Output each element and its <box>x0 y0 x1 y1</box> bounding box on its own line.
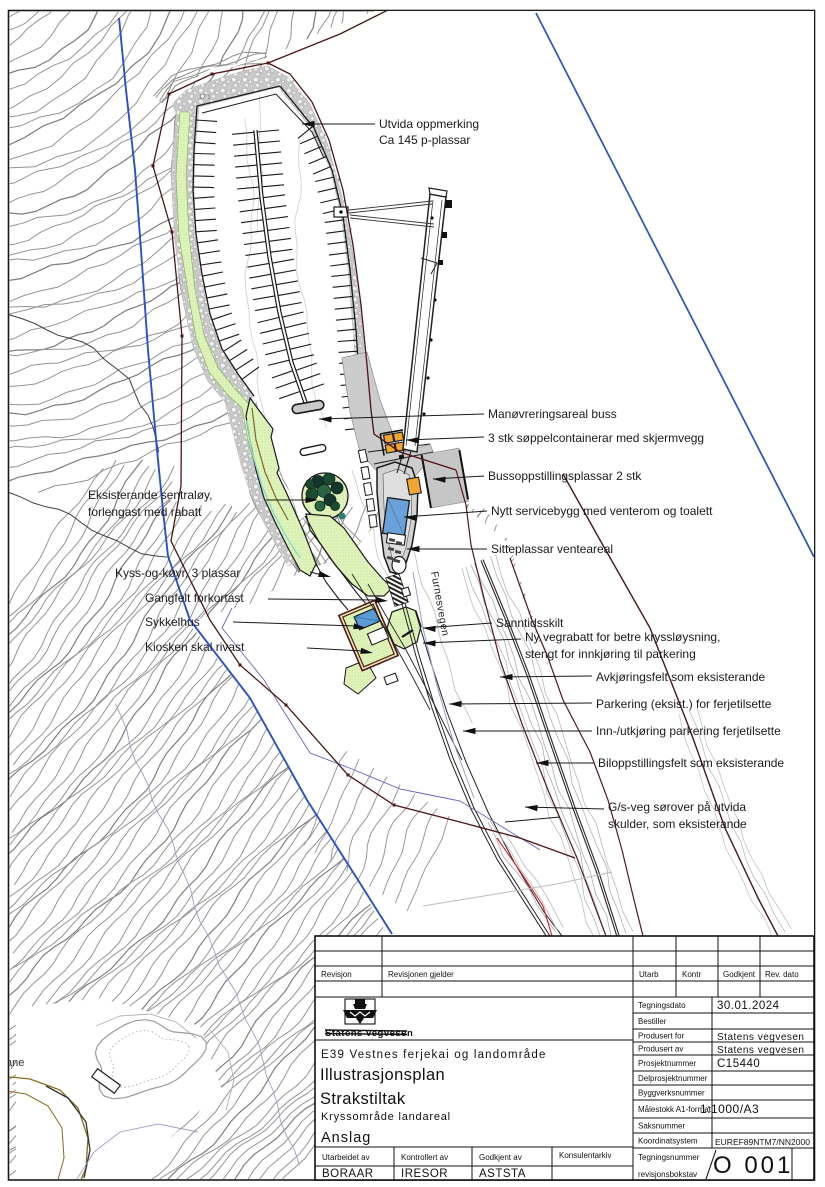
svg-text:Inn-/utkjøring parkering ferje: Inn-/utkjøring parkering ferjetilsette <box>596 724 781 738</box>
svg-text:Ca 145 p-plassar: Ca 145 p-plassar <box>379 133 470 147</box>
svg-text:Godkjent: Godkjent <box>723 970 756 979</box>
svg-text:Produsert for: Produsert for <box>638 1032 685 1041</box>
svg-text:Ny vegrabatt for betre krysslø: Ny vegrabatt for betre kryssløysning, <box>525 630 720 644</box>
svg-text:BORAAR: BORAAR <box>322 1168 374 1180</box>
svg-text:stengt for innkjøring til park: stengt for innkjøring til parkering <box>525 647 696 661</box>
svg-text:Utarbeidet av: Utarbeidet av <box>322 1153 370 1162</box>
svg-text:Gangfelt forkortast: Gangfelt forkortast <box>145 591 244 605</box>
svg-text:skulder, som eksisterande: skulder, som eksisterande <box>608 817 747 831</box>
svg-text:Sanntidsskilt: Sanntidsskilt <box>496 616 564 630</box>
svg-text:Biloppstillingsfelt som eksist: Biloppstillingsfelt som eksisterande <box>598 756 784 770</box>
svg-text:Prosjektnummer: Prosjektnummer <box>638 1059 697 1068</box>
svg-text:Eksisterande sentraløy,: Eksisterande sentraløy, <box>88 488 213 502</box>
svg-text:Bestiller: Bestiller <box>638 1017 667 1026</box>
svg-text:ASTSTA: ASTSTA <box>479 1168 526 1180</box>
svg-text:G/s-veg sørover på utvida: G/s-veg sørover på utvida <box>608 800 746 814</box>
svg-text:IRESOR: IRESOR <box>401 1168 448 1180</box>
svg-text:Konsulentarkiv: Konsulentarkiv <box>559 1151 611 1160</box>
svg-text:Statens vegvesen: Statens vegvesen <box>717 1045 805 1056</box>
svg-text:Illustrasjonsplan: Illustrasjonsplan <box>320 1066 445 1084</box>
svg-text:EUREF89NTM7/NN2000: EUREF89NTM7/NN2000 <box>715 1137 810 1147</box>
svg-text:Sitteplassar venteareal: Sitteplassar venteareal <box>491 542 613 556</box>
svg-text:Tegningsdato: Tegningsdato <box>638 1001 686 1010</box>
svg-text:30.01.2024: 30.01.2024 <box>717 1000 780 1012</box>
svg-text:Saksnummer: Saksnummer <box>638 1122 685 1131</box>
svg-text:forlengast med rabatt: forlengast med rabatt <box>88 505 202 519</box>
svg-text:Strakstiltak: Strakstiltak <box>320 1090 406 1108</box>
svg-text:Utvida oppmerking: Utvida oppmerking <box>379 117 479 131</box>
svg-text:Kiosken skal rivast: Kiosken skal rivast <box>145 640 245 654</box>
svg-text:E39 Vestnes ferjekai og la: E39 Vestnes ferjekai og landområde <box>321 1049 547 1061</box>
svg-text:Manøvreringsareal buss: Manøvreringsareal buss <box>488 407 617 421</box>
svg-text:Revisjon: Revisjon <box>321 970 352 979</box>
svg-text:Revisjonen gjelder: Revisjonen gjelder <box>388 970 454 979</box>
svg-text:Anslag: Anslag <box>321 1130 371 1146</box>
svg-text:Tegningsnummer: Tegningsnummer <box>638 1153 700 1162</box>
svg-text:Utarb: Utarb <box>639 970 659 979</box>
svg-text:Byggverksnummer: Byggverksnummer <box>638 1089 705 1098</box>
svg-text:Kryssområde landareal: Kryssområde landareal <box>321 1111 451 1123</box>
svg-text:Nytt servicebygg med venterom: Nytt servicebygg med venterom og toalett <box>491 504 713 518</box>
svg-text:C15440: C15440 <box>717 1058 760 1070</box>
svg-text:3 stk søppelcontainerar med sk: 3 stk søppelcontainerar med skjermvegg <box>488 431 704 445</box>
svg-text:Statens vegvesen: Statens vegvesen <box>717 1032 805 1043</box>
svg-text:revisjonsbokstav: revisjonsbokstav <box>638 1170 697 1179</box>
svg-text:Delprosjektnummer: Delprosjektnummer <box>638 1074 708 1083</box>
svg-text:Parkering (eksist.) for ferjet: Parkering (eksist.) for ferjetilsette <box>596 697 772 711</box>
svg-text:17 1: 17 1 <box>199 95 211 101</box>
svg-text:1:1000/A3: 1:1000/A3 <box>700 1102 759 1116</box>
svg-text:Rev. dato: Rev. dato <box>765 970 799 979</box>
svg-text:Bussoppstillingsplassar 2 stk: Bussoppstillingsplassar 2 stk <box>488 469 642 483</box>
svg-text:Sykkelhus: Sykkelhus <box>145 615 200 629</box>
svg-text:O 001: O 001 <box>713 1152 793 1179</box>
svg-text:Kontrollert av: Kontrollert av <box>401 1153 448 1162</box>
svg-text:Kontr: Kontr <box>682 970 701 979</box>
svg-text:Godkjent av: Godkjent av <box>479 1153 522 1162</box>
svg-text:Kyss-og-køyr, 3 plassar: Kyss-og-køyr, 3 plassar <box>115 566 240 580</box>
svg-text:Koordinatsystem: Koordinatsystem <box>638 1137 698 1146</box>
svg-text:Produsert av: Produsert av <box>638 1045 683 1054</box>
svg-text:Avkjøringsfelt som eksisterand: Avkjøringsfelt som eksisterande <box>596 670 766 684</box>
